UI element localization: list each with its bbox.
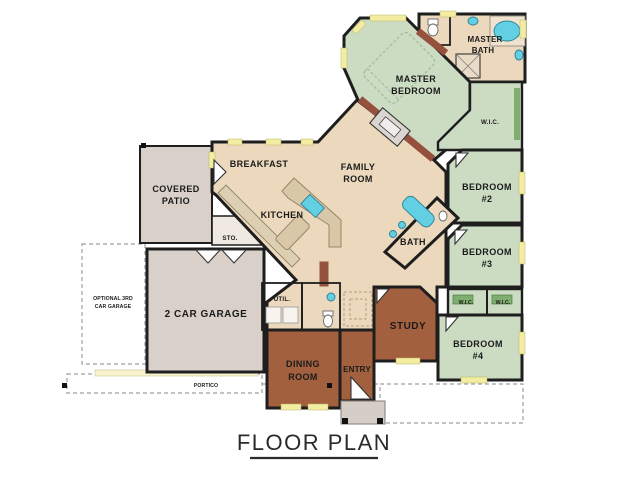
label-dining: DINING [286, 359, 320, 369]
label-covered-patio: COVERED [152, 184, 199, 194]
powder-sink [327, 293, 335, 301]
window-segment [461, 377, 487, 383]
bath-sink [399, 222, 406, 229]
washer [266, 307, 281, 323]
label-master-bedroom: BEDROOM [391, 86, 441, 96]
label-bedroom-4: #4 [473, 351, 484, 361]
master-sink [468, 17, 478, 25]
label-optional-garage: OPTIONAL 3RD [93, 296, 133, 302]
label-family: ROOM [343, 174, 373, 184]
label-wic-left: W.I.C. [459, 300, 474, 306]
portico-outline [67, 374, 262, 393]
label-bedroom-2: #2 [482, 194, 493, 204]
dryer [283, 307, 298, 323]
room-covered-patio [140, 146, 212, 243]
label-bedroom-3: BEDROOM [462, 247, 512, 257]
window-segment [519, 172, 525, 194]
label-kitchen: KITCHEN [261, 210, 304, 220]
window-segment [228, 139, 242, 145]
window-segment [396, 358, 420, 364]
label-utility: UTIL. [274, 296, 291, 303]
label-master-bath: MASTER [468, 35, 503, 44]
floor-plan-drawing: MASTER BATH MASTER BEDROOM W.I.C. BEDROO… [0, 0, 640, 480]
label-storage: STO. [222, 235, 237, 242]
window-segment [281, 404, 301, 410]
window-segment [308, 404, 328, 410]
label-garage: 2 CAR GARAGE [165, 309, 248, 320]
label-bedroom-2: BEDROOM [462, 182, 512, 192]
toilet [324, 315, 333, 327]
label-breakfast: BREAKFAST [230, 159, 289, 169]
label-portico: PORTICO [194, 383, 218, 389]
window-segment [341, 48, 347, 68]
label-covered-patio: PATIO [162, 196, 190, 206]
label-master-bath: BATH [472, 46, 494, 55]
label-wic-right: W.I.C. [496, 300, 511, 306]
master-sink [515, 50, 523, 60]
label-bedroom-4: BEDROOM [453, 339, 503, 349]
window-segment [370, 15, 406, 21]
label-dining: ROOM [288, 372, 318, 382]
wic-shelving [514, 88, 520, 140]
label-optional-garage: CAR GARAGE [95, 304, 132, 310]
window-segment [519, 332, 525, 354]
window-segment [266, 139, 281, 145]
floor-plan-page: MASTER BATH MASTER BEDROOM W.I.C. BEDROO… [0, 0, 640, 480]
label-master-bedroom: MASTER [396, 74, 436, 84]
toilet [428, 24, 438, 36]
window-segment [301, 139, 313, 145]
label-family: FAMILY [341, 162, 376, 172]
label-bedroom-3: #3 [482, 259, 493, 269]
label-bath: BATH [400, 237, 426, 247]
window-segment [440, 11, 456, 17]
rear-patio-outline [380, 384, 523, 423]
window-segment [519, 242, 525, 264]
label-entry: ENTRY [343, 365, 371, 374]
page-title: FLOOR PLAN [237, 430, 391, 455]
label-master-wic: W.I.C. [481, 119, 499, 126]
bath-sink [390, 231, 397, 238]
label-study: STUDY [390, 321, 426, 332]
toilet [439, 211, 447, 221]
room-dining [267, 330, 340, 408]
window-segment [520, 20, 526, 38]
